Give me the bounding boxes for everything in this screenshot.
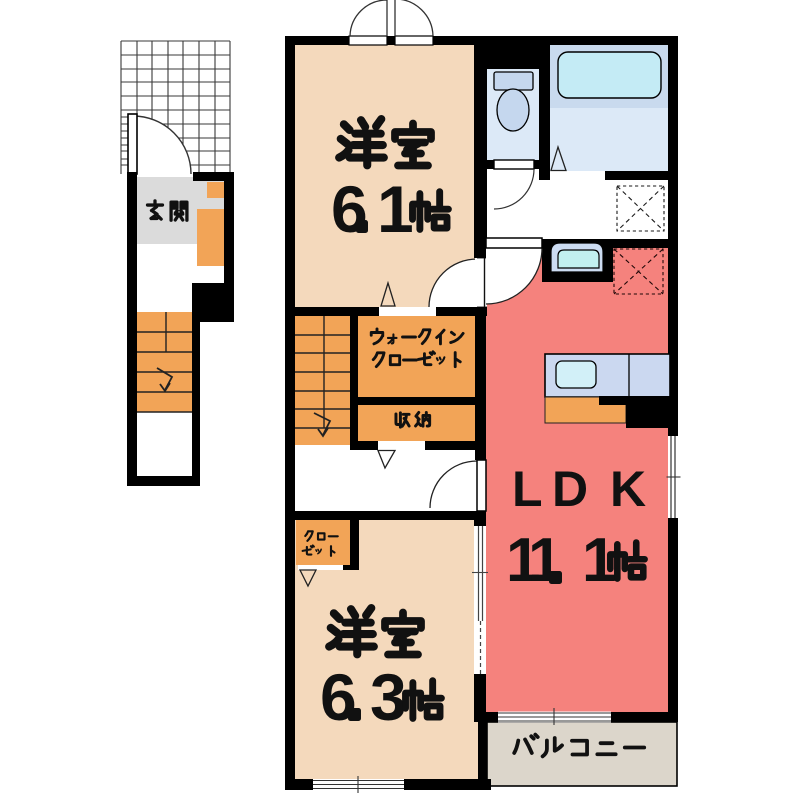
- svg-text:L: L: [512, 461, 543, 517]
- svg-text:6: 6: [320, 660, 357, 734]
- svg-text:1: 1: [528, 526, 562, 595]
- svg-text:1: 1: [377, 172, 414, 246]
- svg-text:3: 3: [370, 660, 407, 734]
- svg-text:6: 6: [331, 172, 368, 246]
- svg-text:D: D: [552, 461, 588, 517]
- svg-text:K: K: [610, 461, 646, 517]
